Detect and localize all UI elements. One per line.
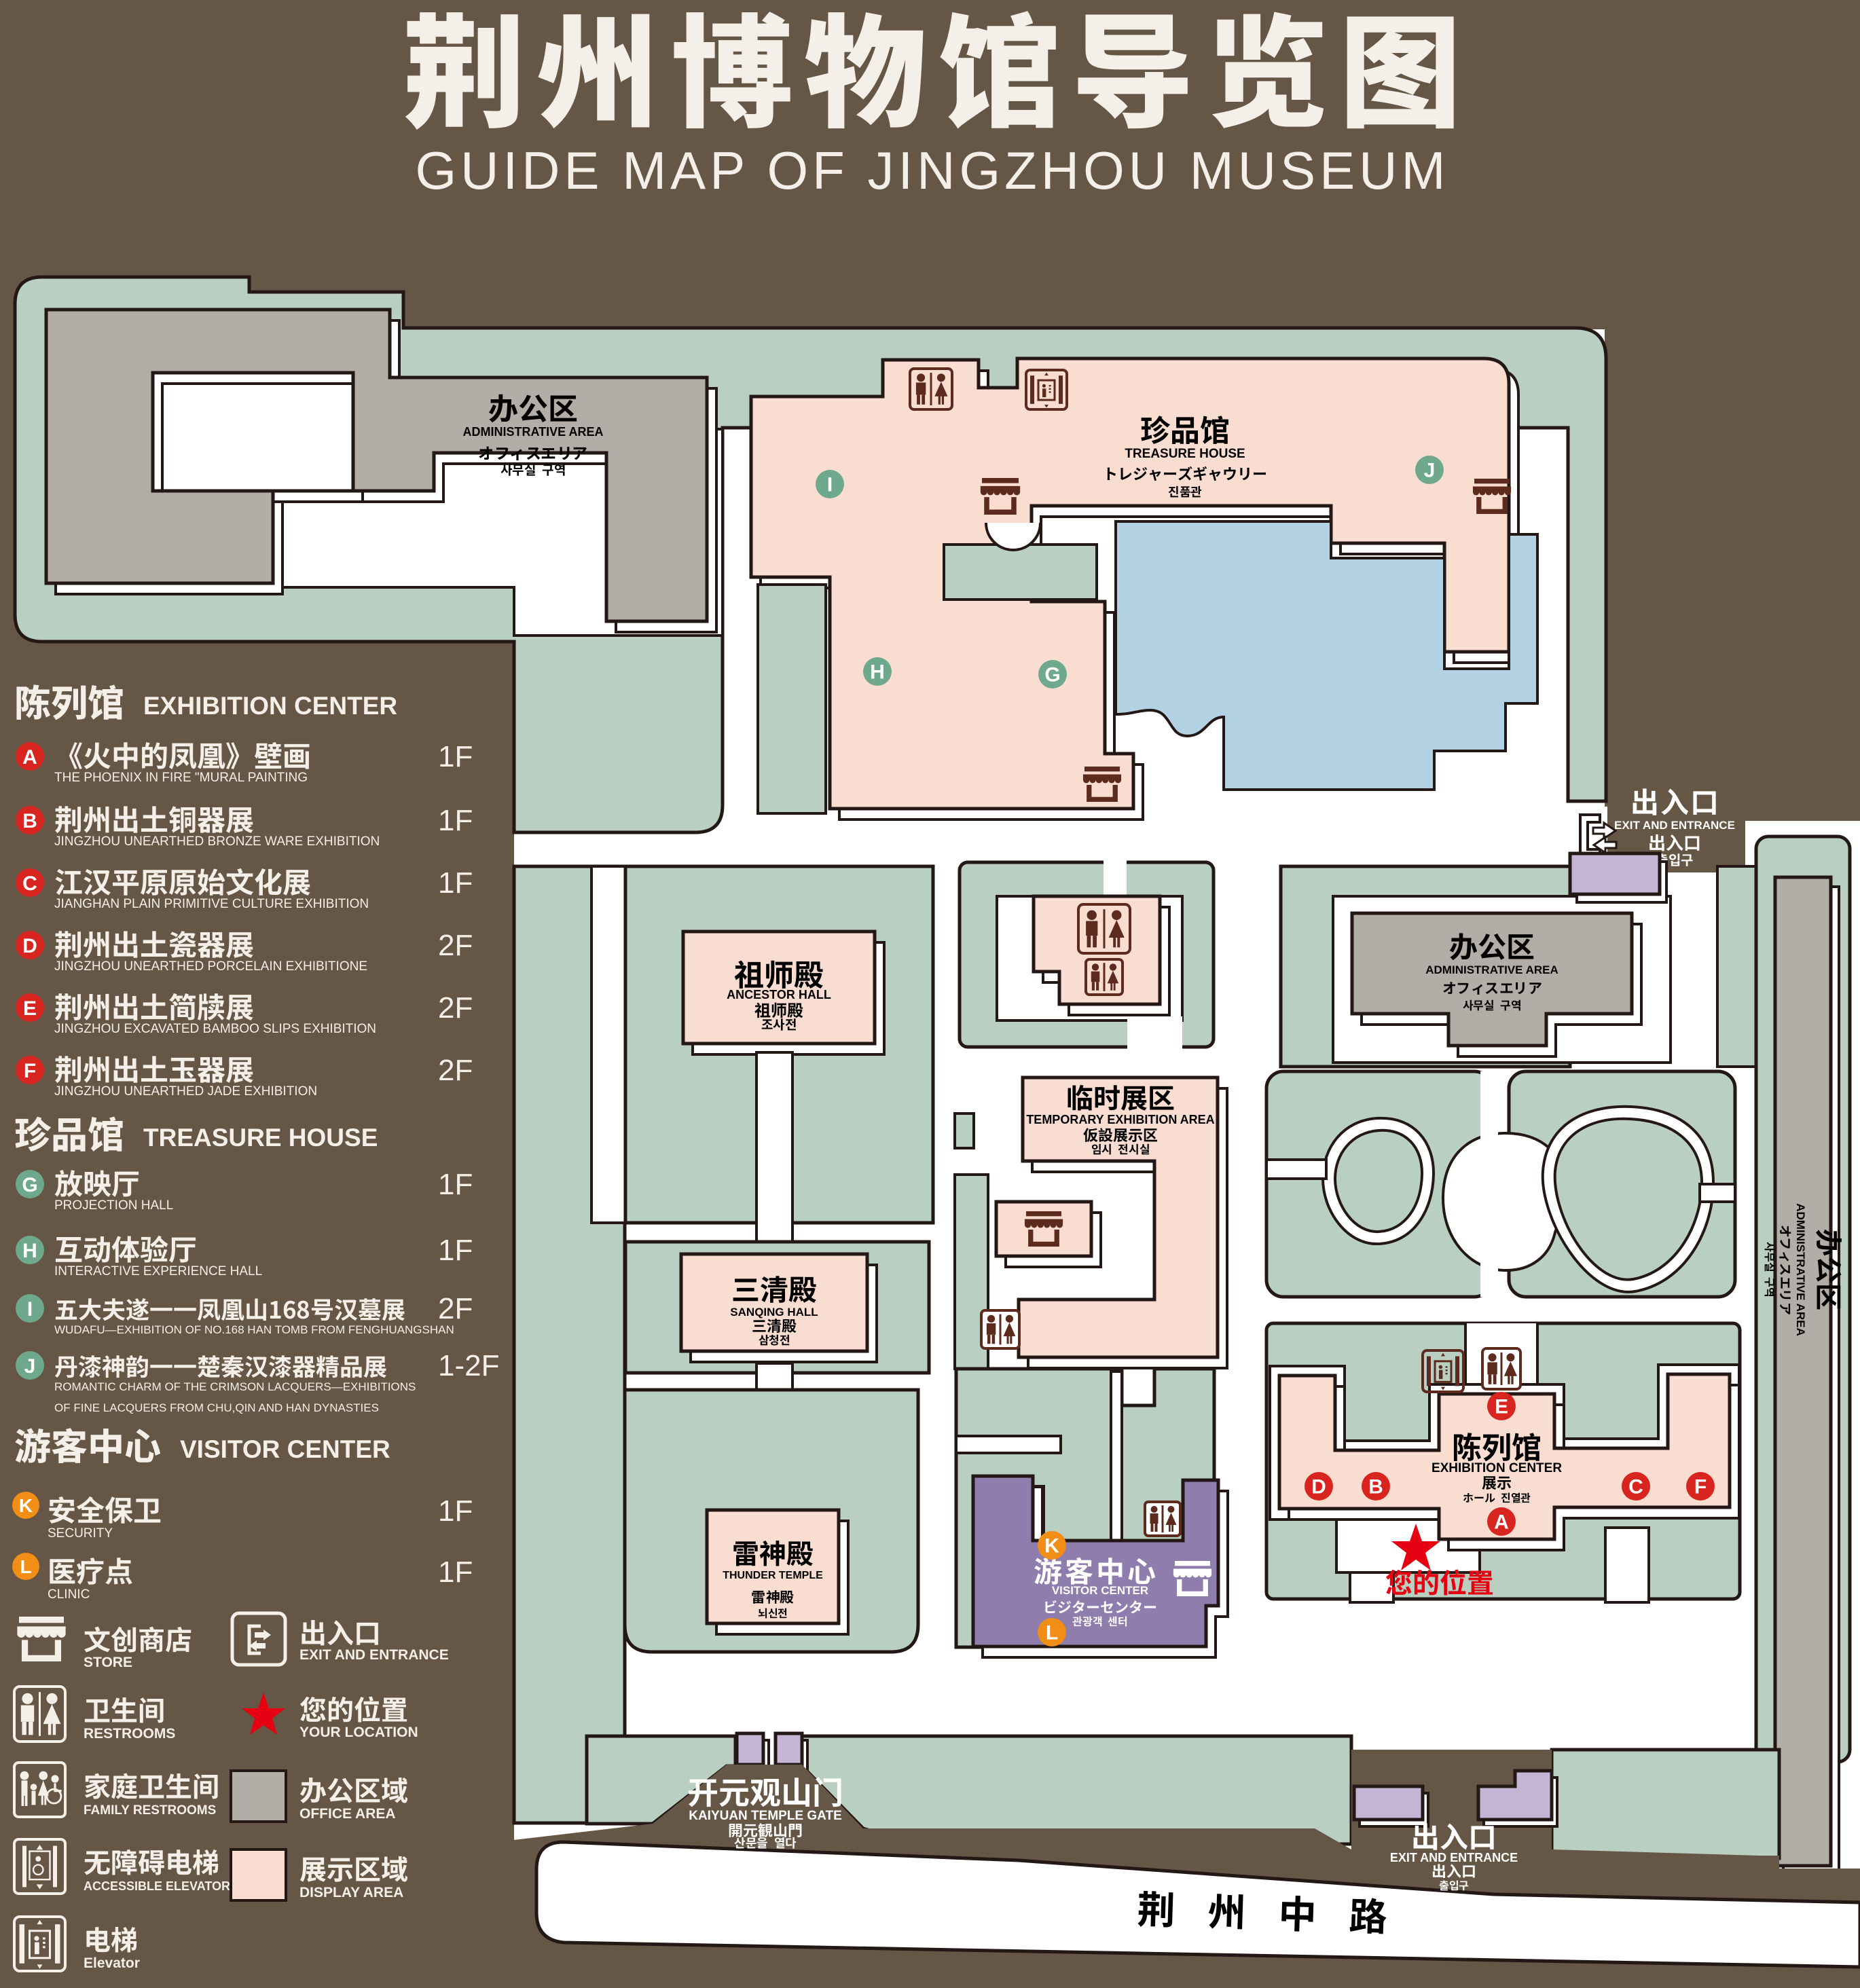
svg-text:J: J [1424,460,1436,482]
svg-text:ACCESSIBLE ELEVATOR: ACCESSIBLE ELEVATOR [84,1879,230,1893]
svg-text:C: C [1628,1476,1643,1498]
svg-text:A: A [1494,1511,1509,1534]
svg-text:SANQING HALL: SANQING HALL [730,1306,818,1319]
svg-text:I: I [27,1298,33,1321]
svg-text:F: F [1694,1476,1707,1498]
svg-text:TEMPORARY EXHIBITION AREA: TEMPORARY EXHIBITION AREA [1026,1113,1214,1126]
svg-text:ADMINISTRATIVE AREA: ADMINISTRATIVE AREA [463,425,604,439]
svg-text:VISITOR CENTER: VISITOR CENTER [180,1435,390,1463]
svg-text:Elevator: Elevator [84,1955,140,1971]
svg-text:SECURITY: SECURITY [48,1526,113,1541]
svg-text:JIANGHAN PLAIN PRIMITIVE CULTU: JIANGHAN PLAIN PRIMITIVE CULTURE EXHIBIT… [54,897,369,911]
svg-text:TREASURE HOUSE: TREASURE HOUSE [143,1124,378,1152]
svg-text:K: K [1044,1535,1059,1558]
svg-text:PROJECTION HALL: PROJECTION HALL [54,1198,173,1213]
svg-text:J: J [24,1355,36,1378]
svg-text:FAMILY RESTROOMS: FAMILY RESTROOMS [84,1803,216,1818]
svg-text:OFFICE AREA: OFFICE AREA [299,1806,396,1822]
svg-text:KAIYUAN TEMPLE GATE: KAIYUAN TEMPLE GATE [689,1809,842,1823]
svg-text:JINGZHOU EXCAVATED BAMBOO SLIP: JINGZHOU EXCAVATED BAMBOO SLIPS EXHIBITI… [54,1022,376,1036]
svg-text:THE PHOENIX IN FIRE "MURAL PAI: THE PHOENIX IN FIRE "MURAL PAINTING [54,771,308,785]
svg-text:JINGZHOU UNEARTHED BRONZE WARE: JINGZHOU UNEARTHED BRONZE WARE EXHIBITIO… [54,834,380,849]
svg-text:1F: 1F [438,1168,473,1201]
svg-text:B: B [1368,1476,1383,1498]
svg-text:OF FINE LACQUERS FROM CHU,QIN: OF FINE LACQUERS FROM CHU,QIN AND HAN DY… [54,1401,379,1414]
svg-text:YOUR LOCATION: YOUR LOCATION [299,1725,418,1740]
svg-text:B: B [22,810,37,832]
svg-text:EXHIBITION CENTER: EXHIBITION CENTER [1432,1461,1562,1475]
svg-text:EXIT AND ENTRANCE: EXIT AND ENTRANCE [299,1647,449,1663]
svg-text:ADMINISTRATIVE AREA: ADMINISTRATIVE AREA [1425,963,1558,976]
svg-text:WUDAFU—EXHIBITION OF NO.168 HA: WUDAFU—EXHIBITION OF NO.168 HAN TOMB FRO… [54,1323,454,1336]
svg-text:DISPLAY AREA: DISPLAY AREA [299,1885,403,1900]
svg-text:JINGZHOU UNEARTHED JADE EXHIBI: JINGZHOU UNEARTHED JADE EXHIBITION [54,1084,317,1099]
svg-text:2F: 2F [438,991,473,1025]
svg-text:1F: 1F [438,804,473,837]
svg-text:E: E [23,997,37,1020]
svg-text:H: H [22,1240,37,1262]
svg-text:1F: 1F [438,1494,473,1528]
svg-text:STORE: STORE [84,1655,132,1670]
svg-text:ANCESTOR HALL: ANCESTOR HALL [727,988,831,1001]
svg-text:1F: 1F [438,1556,473,1589]
svg-text:2F: 2F [438,929,473,962]
svg-text:TREASURE HOUSE: TREASURE HOUSE [1125,447,1245,461]
svg-text:2F: 2F [438,1292,473,1325]
svg-text:INTERACTIVE EXPERIENCE HALL: INTERACTIVE EXPERIENCE HALL [54,1264,262,1278]
svg-text:F: F [24,1060,36,1082]
svg-text:D: D [22,935,37,957]
svg-text:ROMANTIC CHARM OF THE CRIMSON: ROMANTIC CHARM OF THE CRIMSON LACQUERS—E… [54,1380,416,1393]
svg-text:1F: 1F [438,1234,473,1267]
svg-text:L: L [1046,1622,1058,1644]
svg-text:VISITOR CENTER: VISITOR CENTER [1052,1584,1148,1597]
svg-text:GUIDE MAP OF JINGZHOU MUSEUM: GUIDE MAP OF JINGZHOU MUSEUM [416,141,1450,200]
svg-text:2F: 2F [438,1054,473,1087]
svg-text:G: G [1044,664,1060,686]
svg-text:G: G [22,1174,37,1196]
svg-text:EXHIBITION CENTER: EXHIBITION CENTER [143,692,397,720]
svg-text:1-2F: 1-2F [438,1349,499,1382]
svg-text:1F: 1F [438,866,473,900]
svg-text:ADMINISTRATIVE AREA: ADMINISTRATIVE AREA [1794,1203,1807,1336]
svg-text:CLINIC: CLINIC [48,1587,90,1602]
svg-text:THUNDER TEMPLE: THUNDER TEMPLE [723,1570,823,1581]
svg-text:C: C [22,872,37,895]
svg-text:JINGZHOU UNEARTHED PORCELAIN E: JINGZHOU UNEARTHED PORCELAIN EXHIBITIONE [54,959,367,974]
svg-text:I: I [827,474,833,496]
svg-text:RESTROOMS: RESTROOMS [84,1726,175,1742]
svg-text:A: A [22,746,37,769]
svg-text:1F: 1F [438,740,473,773]
svg-text:H: H [870,661,885,684]
svg-text:EXIT AND ENTRANCE: EXIT AND ENTRANCE [1390,1851,1518,1864]
svg-text:K: K [19,1495,33,1516]
svg-text:L: L [20,1556,31,1577]
svg-text:EXIT AND ENTRANCE: EXIT AND ENTRANCE [1614,819,1735,832]
svg-text:D: D [1311,1476,1326,1498]
svg-text:E: E [1495,1396,1508,1418]
